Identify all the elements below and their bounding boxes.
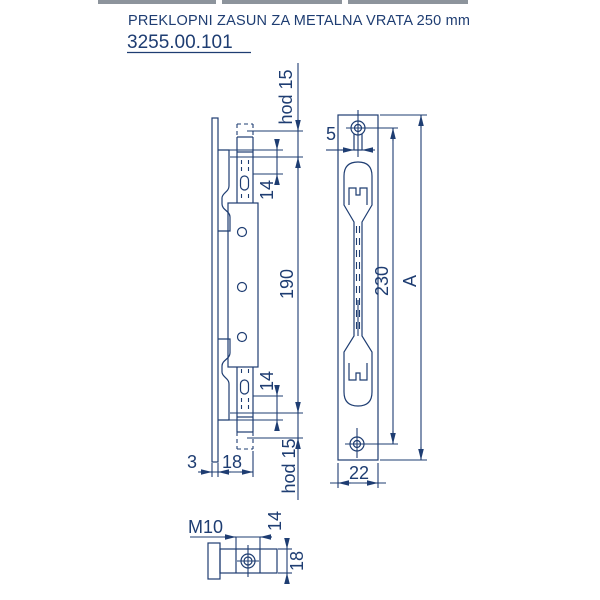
rivet-hole [238, 228, 247, 237]
dim-label-detail-18: 18 [287, 551, 307, 571]
rod-slot-bottom [241, 380, 249, 394]
rod-slot-top [241, 176, 249, 190]
side-view-dimensions: hod 15 14 190 14 hod 15 3 18 [187, 63, 303, 500]
title-block: PREKLOPNI ZASUN ZA METALNA VRATA 250 mm … [127, 13, 470, 53]
page-title: PREKLOPNI ZASUN ZA METALNA VRATA 250 mm [128, 13, 470, 29]
threaded-hole [237, 545, 259, 577]
dim-label-14-bottom: 14 [257, 371, 277, 391]
cropped-table-edge [98, 0, 468, 4]
technical-drawing-page: PREKLOPNI ZASUN ZA METALNA VRATA 250 mm … [0, 0, 600, 600]
front-view: 5 230 A 22 [326, 110, 427, 488]
product-code: 3255.00.101 [127, 32, 233, 53]
door-plate-side [212, 118, 218, 462]
slide-rod-top [237, 124, 253, 203]
slide-rod-bottom [237, 367, 253, 449]
dim-label-14-top: 14 [257, 180, 277, 200]
dim-label-18: 18 [222, 452, 242, 472]
latch-handle-bottom [349, 363, 367, 380]
dim-label-3: 3 [187, 452, 197, 472]
dim-label-190: 190 [277, 269, 297, 299]
dim-label-230: 230 [372, 266, 392, 296]
thread-label-m10: M10 [188, 517, 223, 537]
latch-cutout [344, 162, 372, 406]
side-view: hod 15 14 190 14 hod 15 3 18 [187, 63, 303, 500]
front-view-dimensions: 5 230 A 22 [326, 115, 427, 488]
dim-label-A: A [400, 275, 420, 287]
rod-end-flange [208, 543, 220, 579]
dim-label-detail-14: 14 [265, 511, 285, 531]
rivet-hole [238, 333, 247, 342]
dim-label-hod15-bottom: hod 15 [279, 438, 299, 493]
rivet-hole [238, 283, 247, 292]
dim-label-5: 5 [326, 124, 336, 144]
detail-view: M10 14 18 [188, 511, 307, 584]
dim-label-hod15-top: hod 15 [276, 69, 296, 124]
dim-label-22: 22 [349, 463, 369, 483]
latch-handle-top [349, 188, 367, 205]
technical-drawing: PREKLOPNI ZASUN ZA METALNA VRATA 250 mm … [0, 0, 600, 600]
screw-hole-bottom [345, 428, 370, 458]
